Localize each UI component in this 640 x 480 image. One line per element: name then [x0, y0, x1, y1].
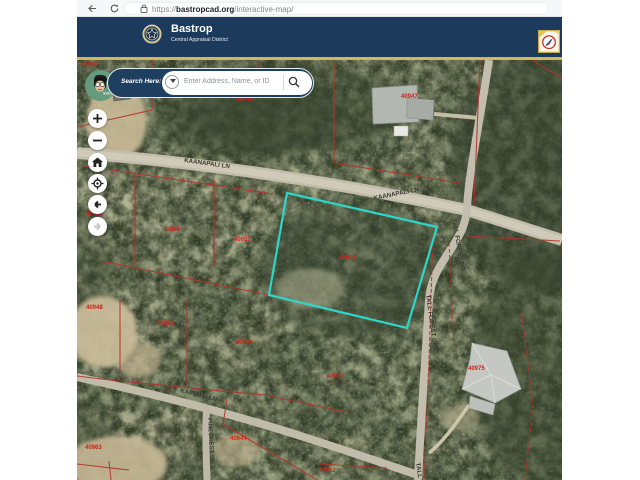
svg-text:40944: 40944 — [230, 436, 247, 442]
svg-text:40946: 40946 — [81, 62, 98, 68]
svg-text:40954: 40954 — [339, 256, 356, 262]
svg-text:40961: 40961 — [327, 374, 344, 380]
svg-text:40953: 40953 — [157, 321, 174, 327]
svg-text:40975: 40975 — [468, 366, 485, 372]
svg-text:40948: 40948 — [86, 305, 103, 311]
svg-text:40947: 40947 — [401, 94, 418, 100]
svg-text:40962: 40962 — [319, 468, 336, 474]
svg-text:40963: 40963 — [85, 445, 102, 451]
svg-text:40955: 40955 — [163, 227, 180, 233]
svg-text:40957: 40957 — [234, 237, 251, 243]
svg-text:40956: 40956 — [236, 340, 253, 346]
